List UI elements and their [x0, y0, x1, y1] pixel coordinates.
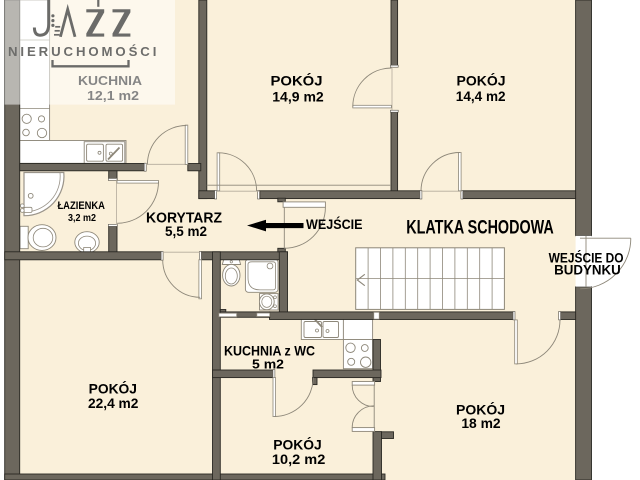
svg-text:NIERUCHOMOŚCI: NIERUCHOMOŚCI	[8, 44, 159, 59]
svg-text:KLATKA SCHODOWA: KLATKA SCHODOWA	[406, 217, 554, 238]
svg-text:5,5 m2: 5,5 m2	[165, 224, 207, 239]
svg-text:POKÓJ: POKÓJ	[271, 74, 323, 89]
svg-text:WEJŚCIE: WEJŚCIE	[306, 215, 363, 232]
svg-text:POKÓJ: POKÓJ	[89, 380, 137, 397]
svg-text:3,2 m2: 3,2 m2	[68, 212, 96, 224]
svg-text:10,2 m2: 10,2 m2	[272, 452, 325, 467]
svg-text:14,4 m2: 14,4 m2	[456, 89, 506, 104]
svg-text:14,9 m2: 14,9 m2	[272, 90, 324, 105]
svg-text:ŁAZIENKA: ŁAZIENKA	[57, 200, 105, 212]
svg-text:BUDYNKU: BUDYNKU	[554, 262, 621, 277]
svg-text:18 m2: 18 m2	[461, 416, 500, 431]
svg-text:POKÓJ: POKÓJ	[273, 438, 322, 453]
svg-text:22,4 m2: 22,4 m2	[88, 395, 139, 411]
svg-text:5 m2: 5 m2	[252, 356, 284, 371]
svg-text:POKÓJ: POKÓJ	[457, 74, 506, 89]
